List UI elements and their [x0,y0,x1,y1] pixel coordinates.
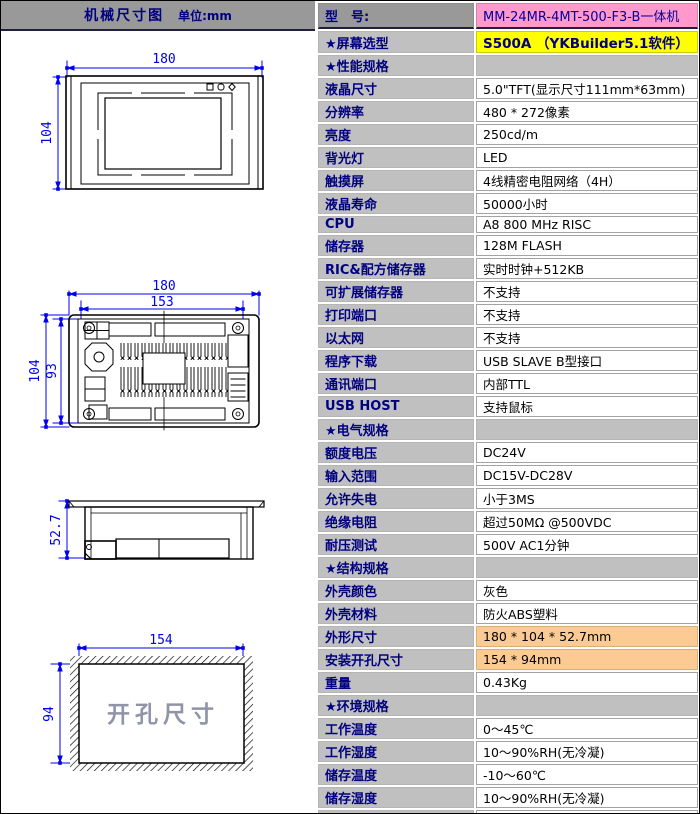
spec-label: ★电气规格 [318,419,474,440]
spec-label: 安装开孔尺寸 [318,649,474,670]
spec-label: 储存器 [318,235,474,256]
spec-row: 程序下载USB SLAVE B型接口 [318,350,698,371]
spec-label: 外壳材料 [318,603,474,624]
spec-value: -10～60℃ [476,764,698,785]
spec-row: 耐压测试500V AC1分钟 [318,534,698,555]
drawing-panel-title: 机械尺寸图 [84,5,164,25]
spec-label: 触摸屏 [318,170,474,191]
spec-label: 抗震度 [318,810,474,814]
rear-center-connector [143,353,185,384]
spec-value: 内部TTL [476,373,698,394]
spec-value: 0.43Kg [476,672,698,693]
spec-row: ★结构规格 [318,557,698,578]
spec-row: 通讯端口内部TTL [318,373,698,394]
spec-row: 额度电压DC24V [318,442,698,463]
spec-row: 触摸屏4线精密电阻网络（4H） [318,170,698,191]
spec-label: 工作湿度 [318,741,474,762]
dimension-drawings: 180 104 [1,1,316,813]
spec-value [476,695,698,716]
side-depth-dim: 52.7 [49,514,64,545]
spec-row: 允许失电小于3MS [318,488,698,509]
spec-row: 外壳材料防火ABS塑料 [318,603,698,624]
spec-table-body: 型 号:MM-24MR-4MT-500-F3-B一体机★屏幕选型S500A （Y… [318,3,698,814]
spec-row: 工作湿度10～90%RH(无冷凝) [318,741,698,762]
spec-row: CPUA8 800 MHz RISC [318,216,698,233]
spec-value: 5.0"TFT(显示尺寸111mm*63mm) [476,78,698,99]
cutout-height-dim: 94 [42,706,57,722]
spec-value: 超过50MΩ @500VDC [476,511,698,532]
spec-value: USB SLAVE B型接口 [476,350,698,371]
spec-value: 180 * 104 * 52.7mm [476,626,698,647]
rear-right-components [228,335,248,401]
rear-inner-height-dim: 93 [45,363,60,379]
spec-value: 灰色 [476,580,698,601]
spec-value: LED [476,147,698,168]
spec-row: ★屏幕选型S500A （YKBuilder5.1软件） [318,31,698,53]
spec-label: ★结构规格 [318,557,474,578]
spec-row: 绝缘电阻超过50MΩ @500VDC [318,511,698,532]
spec-label: 程序下载 [318,350,474,371]
frame-gaps [96,91,234,177]
spec-row: 储存器128M FLASH [318,235,698,256]
spec-value: 10～90%RH(无冷凝) [476,741,698,762]
spec-table-panel: 型 号:MM-24MR-4MT-500-F3-B一体机★屏幕选型S500A （Y… [316,1,700,813]
cutout-label: 开孔尺寸 [107,702,219,728]
spec-row: 液晶尺寸5.0"TFT(显示尺寸111mm*63mm) [318,78,698,99]
spec-label: 分辨率 [318,101,474,122]
spec-value: 实时时钟+512KB [476,258,698,279]
spec-label: 额度电压 [318,442,474,463]
rear-outer-height-dim: 104 [28,359,43,383]
spec-label: 耐压测试 [318,534,474,555]
spec-value: 154 * 94mm [476,649,698,670]
spec-label: 输入范围 [318,465,474,486]
spec-value: 不支持 [476,304,698,325]
spec-label: RIC&配方储存器 [318,258,474,279]
spec-label: ★屏幕选型 [318,31,474,53]
spec-label: 储存湿度 [318,787,474,808]
cutout-width-dim: 154 [149,633,173,648]
spec-label: 外壳颜色 [318,580,474,601]
spec-value: 250cd/m [476,124,698,145]
rear-inner-width-dim: 153 [150,295,173,310]
rear-left-components [85,322,113,419]
spec-row: 抗震度10～25Hz（X、Y、Z方向2G/30分钟） [318,810,698,814]
spec-row: ★性能规格 [318,55,698,76]
drawing-unit-label: 单位:mm [178,7,232,24]
front-height-dim: 104 [40,121,55,145]
spec-row: ★环境规格 [318,695,698,716]
spec-row: 以太网不支持 [318,327,698,348]
spec-label: 允许失电 [318,488,474,509]
spec-label: ★环境规格 [318,695,474,716]
spec-value [476,557,698,578]
spec-value: 0～45℃ [476,718,698,739]
spec-value: 500V AC1分钟 [476,534,698,555]
spec-row: 型 号:MM-24MR-4MT-500-F3-B一体机 [318,3,698,29]
spec-label: 重量 [318,672,474,693]
spec-value: MM-24MR-4MT-500-F3-B一体机 [476,3,698,29]
spec-value: 不支持 [476,281,698,302]
drawing-side-view: 52.7 [49,499,264,560]
spec-value: DC24V [476,442,698,463]
spec-table: 型 号:MM-24MR-4MT-500-F3-B一体机★屏幕选型S500A （Y… [316,1,700,814]
spec-label: 液晶寿命 [318,193,474,214]
spec-row: 打印端口不支持 [318,304,698,325]
drawing-rear-view: 180 153 104 93 [28,279,261,430]
spec-label: ★性能规格 [318,55,474,76]
spec-value: 防火ABS塑料 [476,603,698,624]
spec-label: 打印端口 [318,304,474,325]
spec-label: 亮度 [318,124,474,145]
spec-label: 液晶尺寸 [318,78,474,99]
spec-row: ★电气规格 [318,419,698,440]
spec-label: 外形尺寸 [318,626,474,647]
spec-row: 背光灯LED [318,147,698,168]
spec-value [476,419,698,440]
spec-value: 10～90%RH(无冷凝) [476,787,698,808]
spec-label: 背光灯 [318,147,474,168]
spec-label: 型 号: [318,3,474,29]
drawing-front-view: 180 104 [40,52,264,191]
spec-value: S500A （YKBuilder5.1软件） [476,31,698,53]
spec-label: 通讯端口 [318,373,474,394]
spec-row: 输入范围DC15V-DC28V [318,465,698,486]
spec-row: RIC&配方储存器实时时钟+512KB [318,258,698,279]
spec-value: 10～25Hz（X、Y、Z方向2G/30分钟） [476,810,698,814]
spec-value: 支持鼠标 [476,396,698,417]
spec-label: 以太网 [318,327,474,348]
spec-label: 工作温度 [318,718,474,739]
spec-value [476,55,698,76]
spec-value: 128M FLASH [476,235,698,256]
spec-row: 分辨率480 * 272像素 [318,101,698,122]
spec-label: 可扩展储存器 [318,281,474,302]
spec-label: 绝缘电阻 [318,511,474,532]
spec-value: DC15V-DC28V [476,465,698,486]
spec-row: 储存湿度10～90%RH(无冷凝) [318,787,698,808]
drawing-cutout-view: 154 94 开孔尺寸 [42,633,253,771]
spec-row: 亮度250cd/m [318,124,698,145]
spec-value: 不支持 [476,327,698,348]
spec-value: 50000小时 [476,193,698,214]
spec-value: 480 * 272像素 [476,101,698,122]
spec-row: 安装开孔尺寸154 * 94mm [318,649,698,670]
drawing-panel-header: 机械尺寸图 单位:mm [1,1,315,31]
spec-row: 重量0.43Kg [318,672,698,693]
spec-row: USB HOST支持鼠标 [318,396,698,417]
spec-label: USB HOST [318,396,474,417]
spec-value: 4线精密电阻网络（4H） [476,170,698,191]
spec-sheet: 机械尺寸图 单位:mm [0,0,700,814]
spec-row: 工作温度0～45℃ [318,718,698,739]
spec-row: 液晶寿命50000小时 [318,193,698,214]
spec-value: 小于3MS [476,488,698,509]
spec-label: 储存温度 [318,764,474,785]
indicator-icons [207,84,235,91]
spec-row: 储存温度-10～60℃ [318,764,698,785]
rear-outer-width-dim: 180 [152,279,175,294]
spec-row: 外形尺寸180 * 104 * 52.7mm [318,626,698,647]
mechanical-drawing-panel: 机械尺寸图 单位:mm [1,1,316,813]
spec-value: A8 800 MHz RISC [476,216,698,233]
spec-label: CPU [318,216,474,233]
front-width-dim: 180 [152,52,175,67]
spec-row: 外壳颜色灰色 [318,580,698,601]
spec-row: 可扩展储存器不支持 [318,281,698,302]
